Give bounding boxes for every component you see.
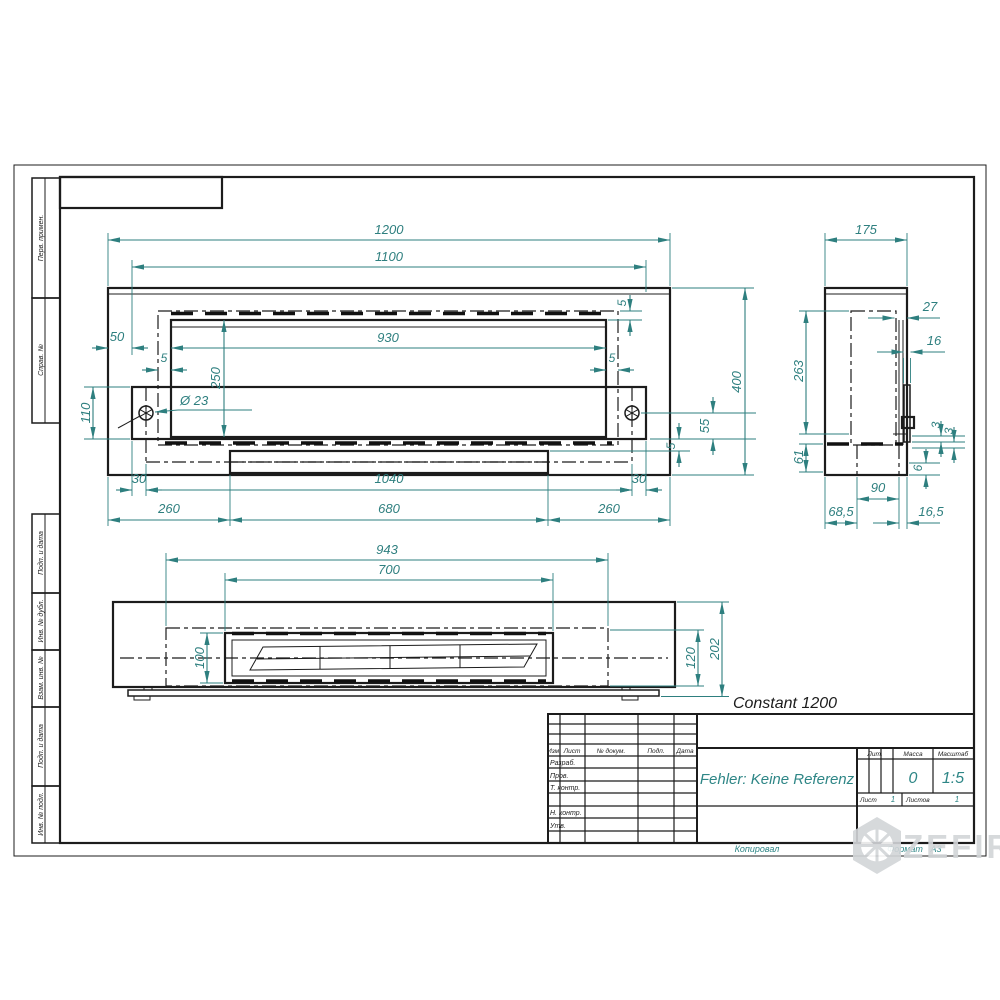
dim-bottom-100: 100 [192, 646, 207, 668]
margin-label-vzam: Взам. инв. № [38, 656, 45, 700]
left-margin-column: Перв. примен. Справ. № Подп. и дата Инв.… [32, 178, 60, 843]
dim-side-16: 16 [927, 333, 942, 348]
dim-side-6: 6 [911, 464, 925, 471]
tb-row-tkontr: Т. контр. [550, 785, 580, 792]
dim-front-5-right: 5 [609, 351, 616, 365]
dim-front-30-left: 30 [132, 471, 147, 486]
dim-front-260-right: 260 [597, 501, 620, 516]
dim-front-680: 680 [378, 501, 400, 516]
tb-row-prov: Пров. [550, 773, 569, 780]
dim-front-260-left: 260 [157, 501, 180, 516]
dim-front-1200: 1200 [375, 222, 405, 237]
dim-front-5-top: 5 [615, 299, 629, 306]
side-view-dimensions: 175 27 16 263 61 3 3 6 90 68,5 16,5 [791, 222, 965, 529]
dim-front-5-bottom: 5 [664, 442, 678, 449]
tb-header-list: Лист [563, 748, 581, 755]
dim-front-1040: 1040 [375, 471, 405, 486]
tb-listov-label: Листов [905, 797, 930, 804]
margin-label-inv-dubl: Инв. № дубл. [37, 599, 45, 642]
margin-label-perv: Перв. примен. [38, 215, 45, 262]
tb-doc-name: Fehler: Keine Referenz [700, 771, 855, 788]
tb-header-izm: Изм. [547, 748, 561, 755]
dim-front-250: 250 [208, 366, 223, 389]
dim-side-263: 263 [791, 359, 806, 382]
tb-listov-value: 1 [955, 795, 959, 804]
dim-front-400: 400 [729, 370, 744, 392]
dim-side-90: 90 [871, 480, 886, 495]
tb-header-podp: Подп. [647, 747, 664, 755]
side-view [825, 288, 914, 475]
dim-front-50: 50 [110, 329, 125, 344]
bottom-view-dimensions: 943 700 100 120 202 [166, 542, 729, 697]
tb-header-doc: № докум. [597, 747, 626, 755]
dim-bottom-943: 943 [376, 542, 398, 557]
dim-front-110: 110 [78, 402, 93, 423]
dim-bottom-202: 202 [707, 637, 722, 660]
dim-side-27: 27 [922, 299, 938, 314]
front-view-dimensions: 1200 1100 930 50 250 5 5 5 Ø 23 110 400 … [78, 222, 756, 526]
dim-front-dia23: Ø 23 [179, 393, 209, 408]
margin-label-podp1: Подп. и дата [37, 531, 45, 575]
dim-side-61: 61 [791, 450, 806, 464]
tb-row-utv: Утв. [549, 823, 566, 830]
tb-row-nkontr: Н. контр. [550, 810, 582, 817]
dim-side-165: 16,5 [918, 504, 944, 519]
tb-row-razrab: Разраб. [550, 759, 575, 767]
tb-header-massa: Масса [903, 751, 923, 758]
dim-front-1100: 1100 [375, 249, 404, 264]
tb-list-label: Лист [859, 797, 877, 804]
zefire-watermark-text: ZEFIRE [903, 828, 1000, 865]
zefire-watermark: ZEFIRE [853, 817, 1000, 874]
tb-list-value: 1 [891, 795, 895, 804]
front-view [108, 288, 670, 475]
drawing-svg: Перв. примен. Справ. № Подп. и дата Инв.… [0, 0, 1000, 1000]
drawing-sheet: Перв. примен. Справ. № Подп. и дата Инв.… [0, 0, 1000, 1000]
tb-header-data: Дата [675, 748, 694, 755]
footer-kopiroval: Копировал [735, 844, 780, 854]
dim-front-30-right: 30 [632, 471, 647, 486]
dim-side-685: 68,5 [828, 504, 854, 519]
margin-label-podp2: Подп. и дата [37, 724, 45, 768]
title-block: Изм. Лист № докум. Подп. Дата Разраб. Пр… [547, 714, 974, 843]
tb-mass-value: 0 [909, 770, 918, 787]
margin-label-sprav: Справ. № [38, 344, 45, 376]
dim-side-3b: 3 [942, 427, 956, 434]
dim-front-55: 55 [697, 418, 712, 433]
tb-header-lit: Лит. [866, 751, 882, 758]
knob-right [625, 406, 639, 420]
margin-label-inv-podl: Инв. № подл. [37, 792, 45, 835]
dim-side-3a: 3 [929, 421, 943, 428]
tb-header-masshtab: Масштаб [938, 750, 969, 758]
tb-scale-value: 1:5 [942, 770, 964, 787]
dim-bottom-700: 700 [378, 562, 400, 577]
dim-front-5-left: 5 [161, 351, 168, 365]
knob-left [139, 406, 153, 420]
dim-front-930: 930 [377, 330, 399, 345]
dim-side-175: 175 [855, 222, 877, 237]
drawing-title: Constant 1200 [733, 695, 837, 712]
dim-bottom-120: 120 [683, 646, 698, 668]
